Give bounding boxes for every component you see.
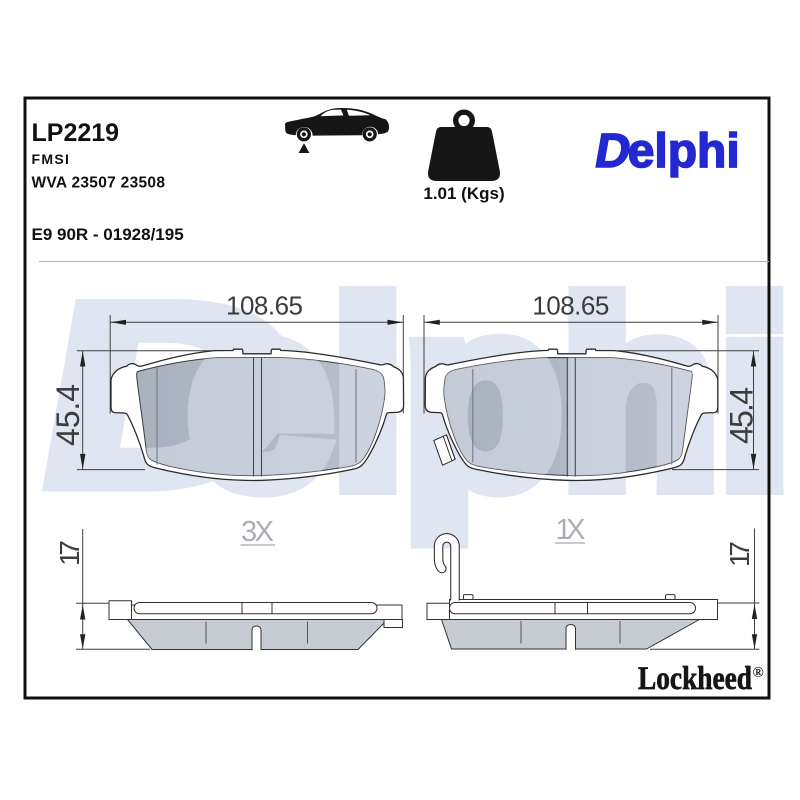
svg-text:17: 17 (54, 540, 85, 566)
svg-text:3X: 3X (241, 516, 274, 548)
svg-text:®: ® (753, 665, 764, 681)
svg-text:FMSI: FMSI (32, 151, 71, 167)
svg-text:elphi: elphi (628, 125, 740, 178)
svg-text:45.4: 45.4 (50, 384, 86, 446)
svg-text:WVA 23507 23508: WVA 23507 23508 (32, 175, 166, 192)
svg-text:Lockheed: Lockheed (638, 661, 752, 697)
svg-text:1.01 (Kgs): 1.01 (Kgs) (423, 184, 504, 203)
svg-text:108.65: 108.65 (532, 291, 609, 321)
svg-text:108.65: 108.65 (226, 291, 303, 321)
svg-text:E9 90R - 01928/195: E9 90R - 01928/195 (32, 225, 184, 244)
svg-text:1X: 1X (556, 514, 586, 546)
svg-text:LP2219: LP2219 (32, 119, 120, 147)
svg-text:45.4: 45.4 (724, 387, 760, 444)
svg-text:17: 17 (724, 541, 755, 567)
